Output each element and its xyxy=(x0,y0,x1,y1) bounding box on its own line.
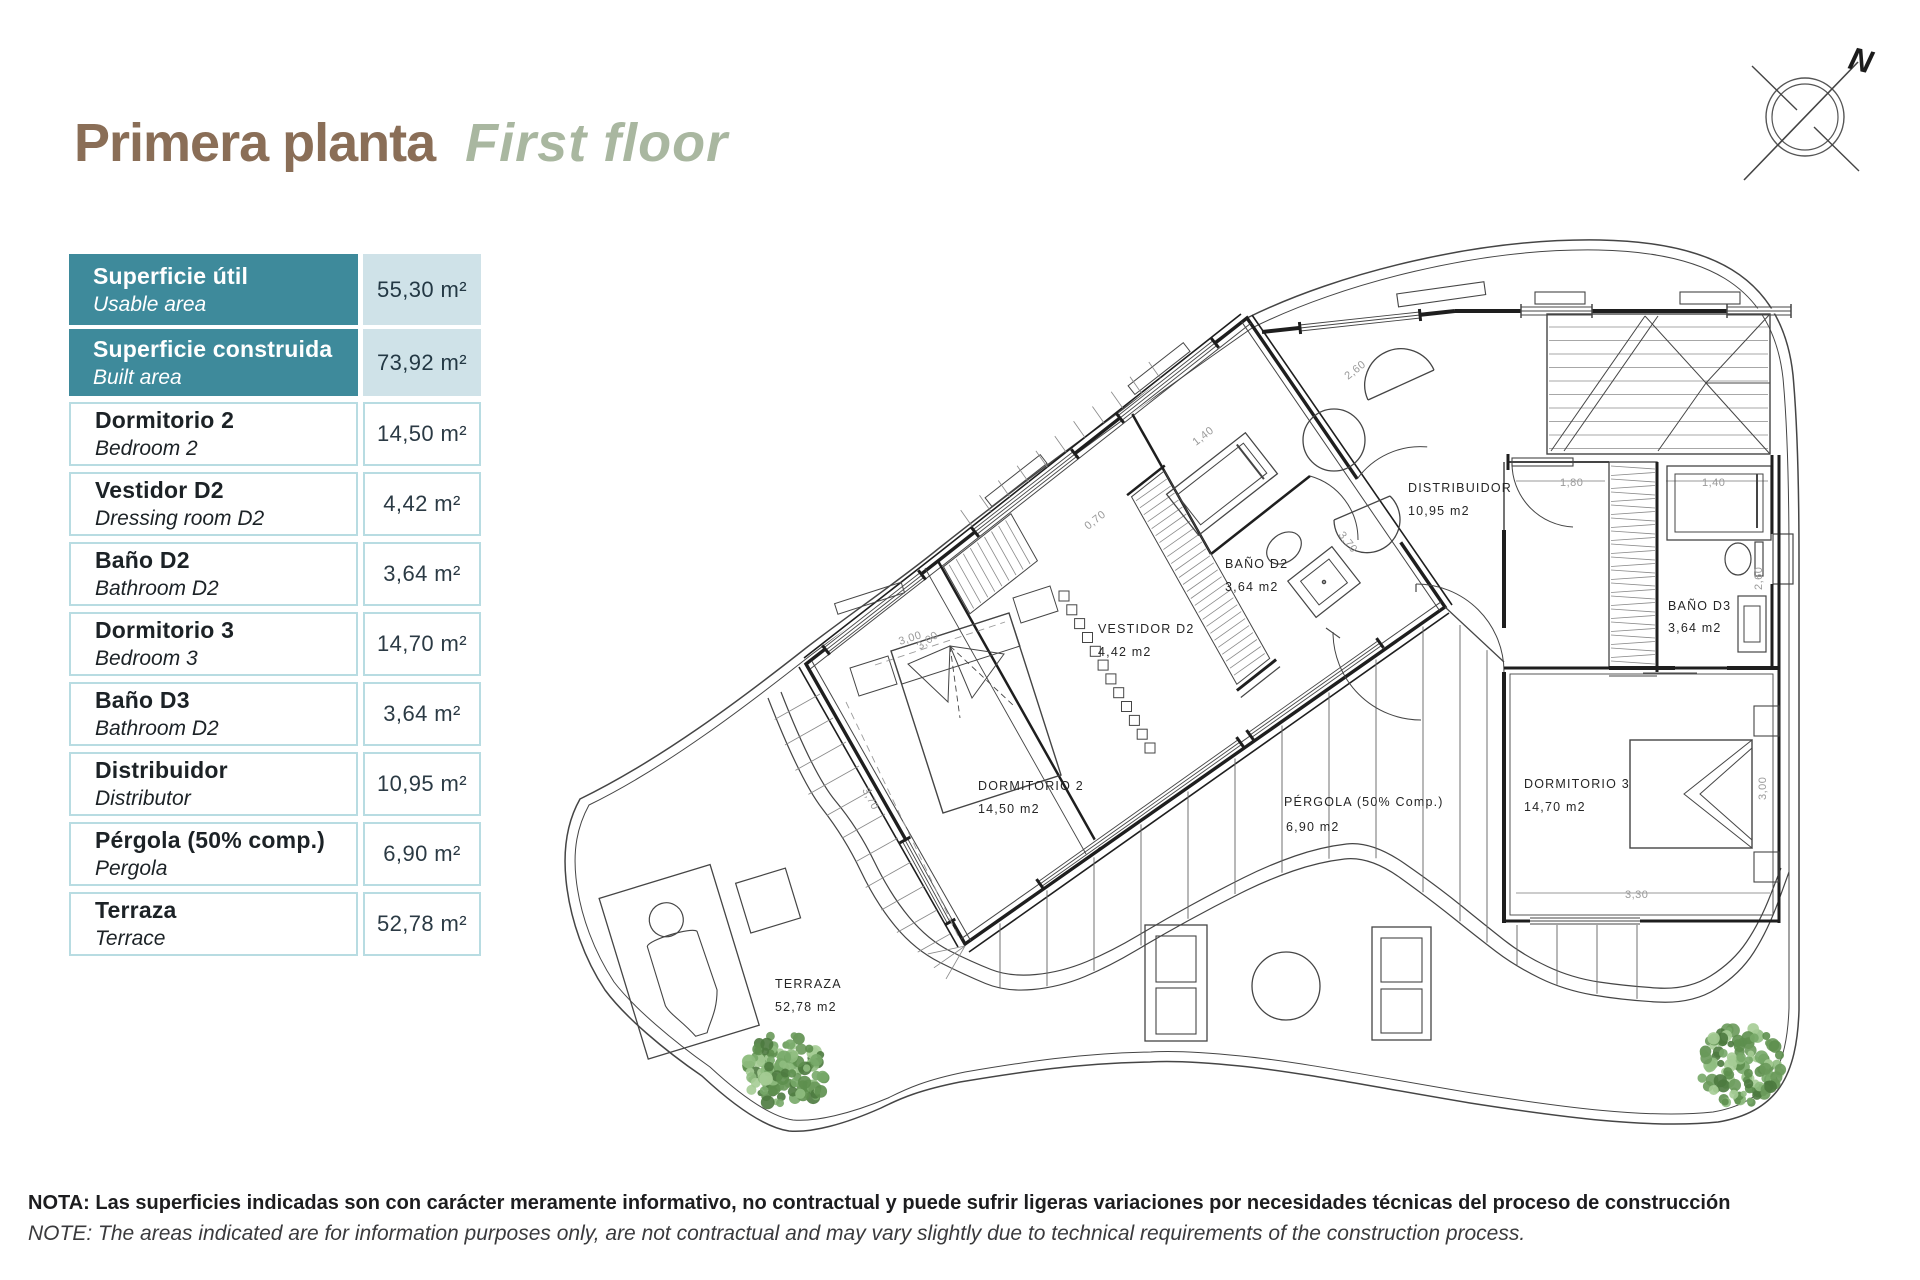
svg-text:6,90 m2: 6,90 m2 xyxy=(1286,820,1340,834)
svg-text:3,30: 3,30 xyxy=(1625,889,1648,901)
svg-text:TERRAZA: TERRAZA xyxy=(775,977,842,991)
svg-text:DORMITORIO 3: DORMITORIO 3 xyxy=(1524,777,1630,791)
svg-text:52,78 m2: 52,78 m2 xyxy=(775,1000,837,1014)
svg-text:2,60: 2,60 xyxy=(1753,567,1765,590)
svg-text:1,80: 1,80 xyxy=(1560,477,1583,489)
svg-text:3,00: 3,00 xyxy=(1757,777,1769,800)
svg-text:10,95 m2: 10,95 m2 xyxy=(1408,504,1470,518)
svg-text:DORMITORIO 2: DORMITORIO 2 xyxy=(978,779,1084,793)
svg-text:2,60: 2,60 xyxy=(1342,358,1368,382)
svg-text:4,42 m2: 4,42 m2 xyxy=(1098,645,1152,659)
svg-text:N: N xyxy=(1845,40,1877,81)
svg-text:1,40: 1,40 xyxy=(1702,477,1725,489)
svg-text:VESTIDOR D2: VESTIDOR D2 xyxy=(1098,622,1195,636)
svg-text:DISTRIBUIDOR: DISTRIBUIDOR xyxy=(1408,481,1512,495)
svg-text:BAÑO D3: BAÑO D3 xyxy=(1668,599,1731,613)
svg-text:1,40: 1,40 xyxy=(1190,424,1216,448)
svg-text:0,70: 0,70 xyxy=(1082,508,1108,532)
svg-text:PÉRGOLA (50% Comp.): PÉRGOLA (50% Comp.) xyxy=(1284,794,1444,809)
svg-text:14,50 m2: 14,50 m2 xyxy=(978,802,1040,816)
svg-text:3,64 m2: 3,64 m2 xyxy=(1225,580,1279,594)
svg-text:3,64 m2: 3,64 m2 xyxy=(1668,621,1722,635)
svg-text:BAÑO D2: BAÑO D2 xyxy=(1225,557,1288,571)
svg-text:14,70 m2: 14,70 m2 xyxy=(1524,800,1586,814)
